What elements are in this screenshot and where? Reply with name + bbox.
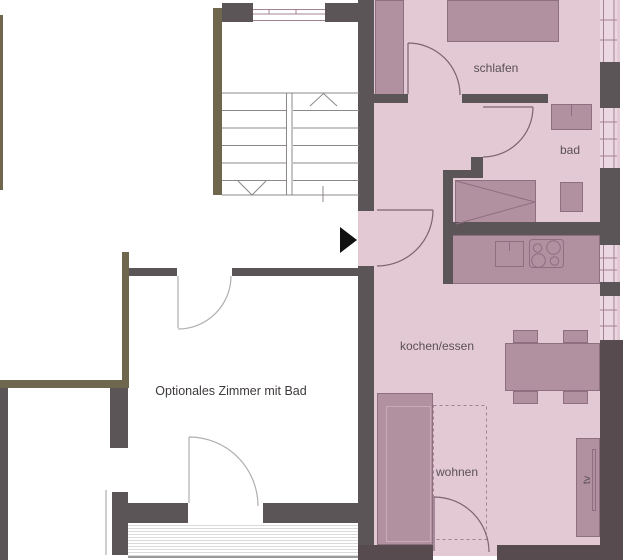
room-label-kitchen-dining: kochen/essen [400, 339, 474, 353]
door-bedroom [408, 43, 460, 95]
staircase [222, 93, 359, 202]
stove [530, 240, 564, 268]
room-label-living: wohnen [436, 465, 478, 479]
label-tv: tv [581, 476, 593, 484]
plan-linework [0, 0, 623, 560]
sofa-inner-line [387, 407, 431, 542]
entrance-arrow [340, 227, 357, 253]
floor-plan: schlafen bad kochen/essen wohnen tv Opti… [0, 0, 623, 560]
room-label-bedroom: schlafen [474, 61, 519, 75]
window-frames [600, 0, 617, 340]
stairs-down-arrow [238, 181, 266, 195]
door-optional-room [178, 276, 231, 329]
door-entrance [377, 210, 433, 266]
room-label-bathroom: bad [560, 143, 580, 157]
stairwell-window [253, 10, 325, 21]
room-label-optional-room: Optionales Zimmer mit Bad [155, 384, 306, 398]
door-bathroom [483, 107, 533, 157]
door-optional-terrace [189, 437, 258, 506]
kitchen-sink [496, 242, 524, 267]
stairs-up-arrow [310, 94, 337, 107]
shower-symbol [456, 181, 535, 224]
door-living-terrace [434, 497, 489, 552]
